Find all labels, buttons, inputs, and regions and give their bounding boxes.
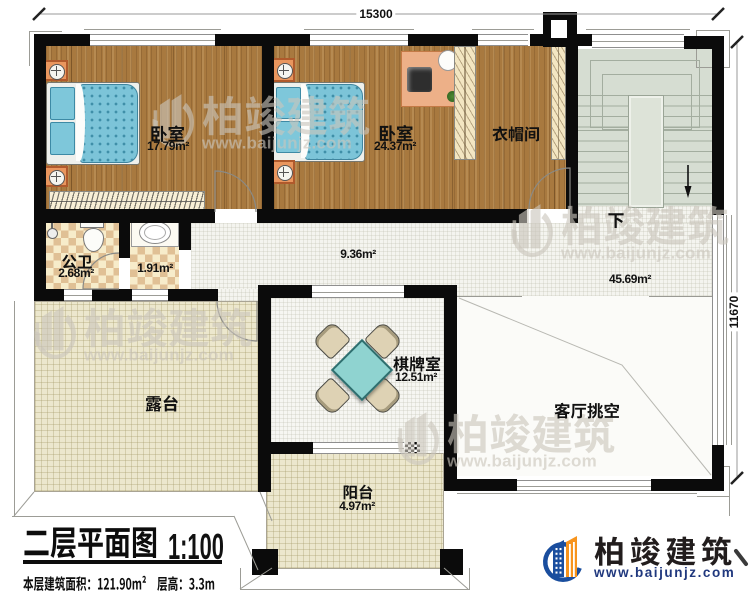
svg-text:www.baijunjz.com: www.baijunjz.com [560,244,711,263]
svg-text:www.baijunjz.com: www.baijunjz.com [201,134,352,153]
svg-text:www.baijunjz.com: www.baijunjz.com [446,452,597,471]
svg-text:www.baijunjz.com: www.baijunjz.com [83,346,234,365]
